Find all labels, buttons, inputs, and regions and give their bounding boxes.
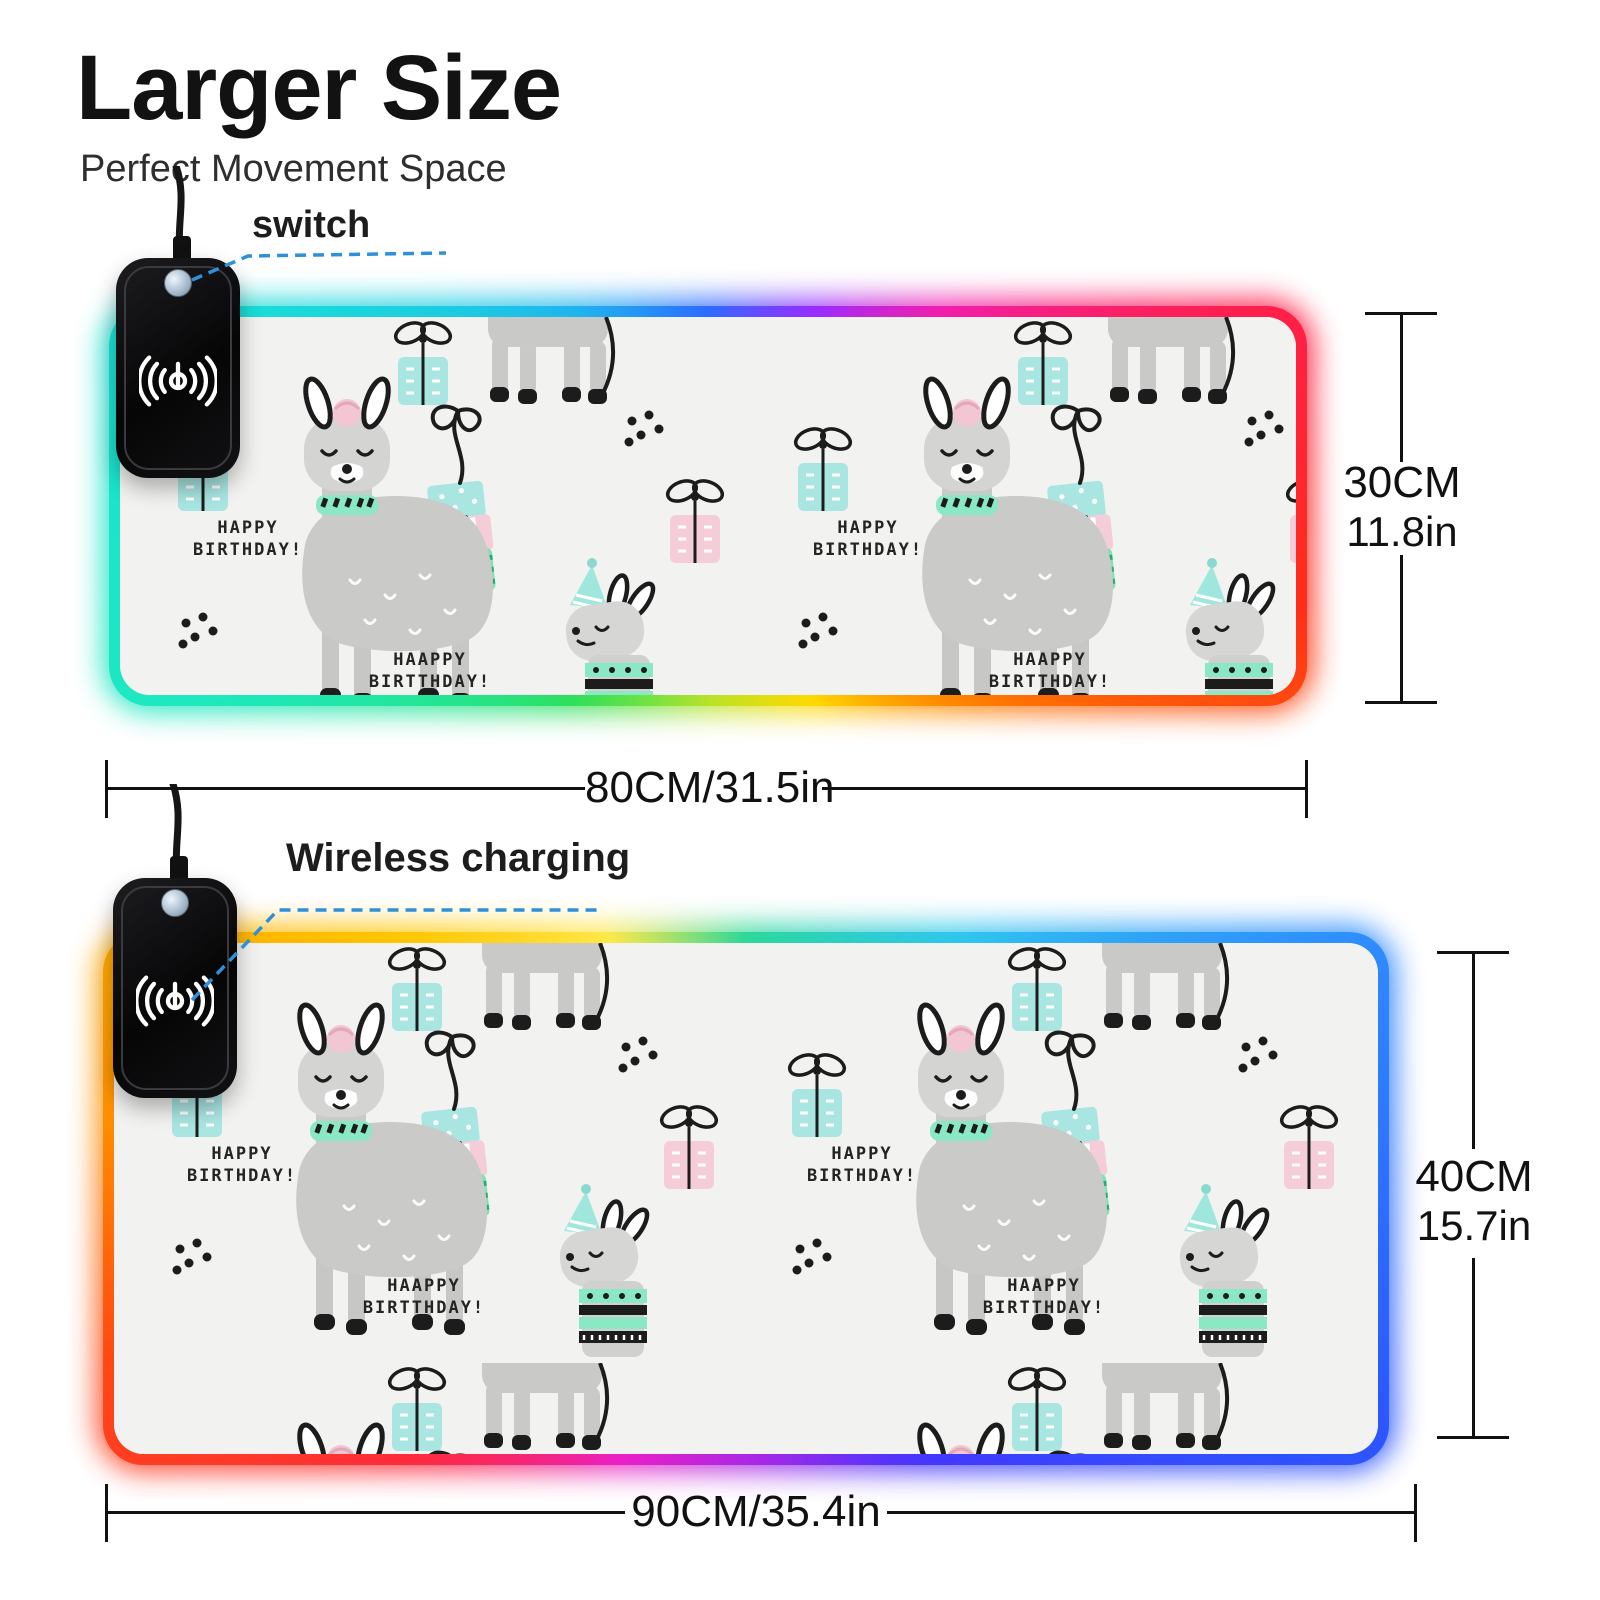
mousepad-surface xyxy=(120,317,1296,695)
width-dim-line xyxy=(107,787,585,790)
height-dim-line xyxy=(1472,953,1475,1149)
wireless-charging-icon xyxy=(139,342,217,420)
wireless-charging-callout-label: Wireless charging xyxy=(286,836,630,881)
height-dim-line xyxy=(1400,314,1403,462)
height-value-in: 15.7in xyxy=(1388,1202,1560,1250)
mousepad-90x40 xyxy=(99,928,1393,1469)
width-value: 80CM/31.5in xyxy=(585,763,822,813)
width-dim-line xyxy=(887,1511,1416,1514)
product-size-diagram: HAPPY BIRTHDAY! HAAPPY BIRTTHDAY! Larger… xyxy=(0,0,1600,1600)
width-dim-tick-right xyxy=(1414,1484,1417,1542)
height-dim-cap-bottom xyxy=(1365,701,1437,704)
page-subtitle: Perfect Movement Space xyxy=(80,148,507,191)
height-dim-line xyxy=(1400,555,1403,703)
switch-callout-line xyxy=(186,240,452,286)
height-dim-line xyxy=(1472,1258,1475,1436)
llama-pattern xyxy=(120,317,1296,695)
page-title: Larger Size xyxy=(76,36,561,141)
charger-cable xyxy=(143,784,223,884)
height-value-in: 11.8in xyxy=(1316,508,1488,556)
width-dim-line xyxy=(107,1511,625,1514)
width-dim-line xyxy=(822,787,1307,790)
width-dim-tick-right xyxy=(1305,760,1308,818)
height-value-cm: 30CM xyxy=(1316,458,1488,508)
height-value-cm: 40CM xyxy=(1388,1152,1560,1202)
mousepad-80x30 xyxy=(105,302,1311,710)
wireless-charging-callout-line xyxy=(182,896,606,1008)
llama-pattern xyxy=(114,943,1378,1454)
mousepad-surface xyxy=(114,943,1378,1454)
wireless-charger xyxy=(116,258,240,478)
height-dim-cap-bottom xyxy=(1437,1436,1509,1439)
width-value: 90CM/35.4in xyxy=(625,1487,887,1537)
